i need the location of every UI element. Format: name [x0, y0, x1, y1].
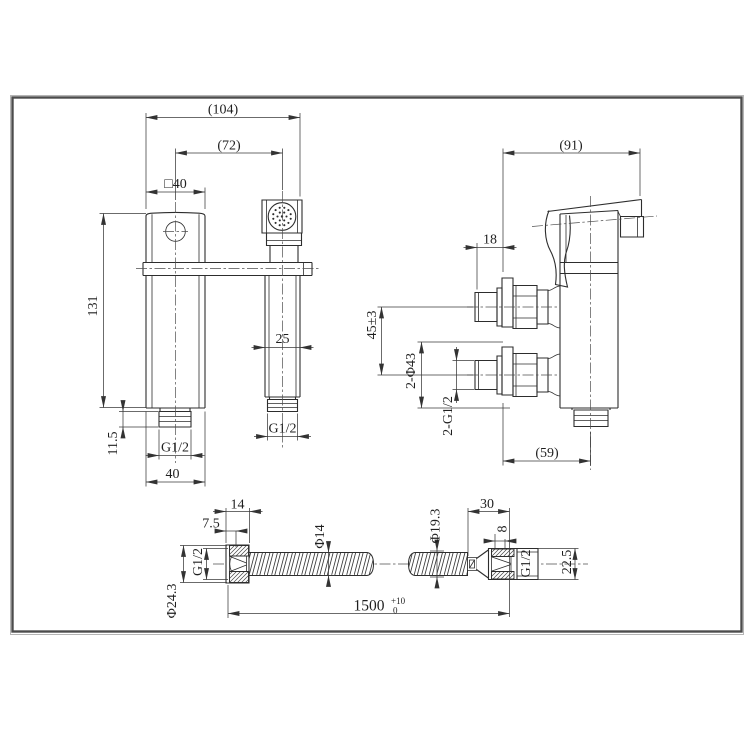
dim-hose-cone-depth: 7.5 [202, 517, 220, 532]
dim-hose-outer-diameter: Φ19.3 [429, 509, 444, 544]
dim-front-base-width: 40 [166, 467, 180, 482]
dim-front-body-square: □40 [164, 177, 186, 192]
dim-hose-length-tol-upper: +10 [391, 596, 406, 606]
dim-hose-diameter: Φ14 [313, 524, 328, 548]
dim-hose-thread-right: G1/2 [519, 550, 534, 578]
dim-hose-nut-diameter: Φ24.3 [165, 584, 180, 619]
drawing-page: (104) (72) □40 131 11.5 G1/2 40 25 [0, 0, 750, 750]
dim-front-thread-right: G1/2 [269, 422, 297, 437]
dim-front-overall-width: (104) [208, 103, 239, 118]
dim-hose-fitting-diameter: 22.5 [560, 550, 575, 575]
hose-coil-right [409, 553, 468, 576]
hose-clip [468, 558, 477, 571]
dim-side-flange-diameter: 2-Φ43 [404, 353, 419, 389]
dim-hose-thread-length: 8 [496, 526, 511, 533]
dim-hose-length: 1500 [354, 598, 385, 615]
dim-side-inlet-threads: 2-G1/2 [441, 396, 456, 436]
dim-front-shank-length: 11.5 [106, 432, 121, 456]
dim-side-inlet-projection: 18 [483, 233, 497, 248]
dim-hose-length-tol-lower: 0 [393, 606, 398, 616]
hose-left-connector [226, 545, 249, 583]
dim-hose-fitting-length: 30 [480, 497, 494, 512]
dim-hose-thread-left: G1/2 [191, 548, 206, 576]
dim-front-body-height: 131 [86, 296, 101, 317]
drawing-frame [13, 98, 742, 632]
dim-side-body-offset: (59) [535, 446, 559, 461]
dim-hose-nut-length: 14 [231, 498, 245, 513]
dim-front-hole-centers: (72) [217, 139, 241, 154]
dim-front-spout-width: 25 [276, 332, 290, 347]
dim-side-inlet-centers: 45±3 [365, 311, 380, 340]
hose-coil-left [249, 553, 374, 576]
dim-front-thread-left: G1/2 [161, 441, 189, 456]
dim-side-overall-depth: (91) [559, 139, 583, 154]
technical-drawing: (104) (72) □40 131 11.5 G1/2 40 25 [0, 0, 750, 750]
